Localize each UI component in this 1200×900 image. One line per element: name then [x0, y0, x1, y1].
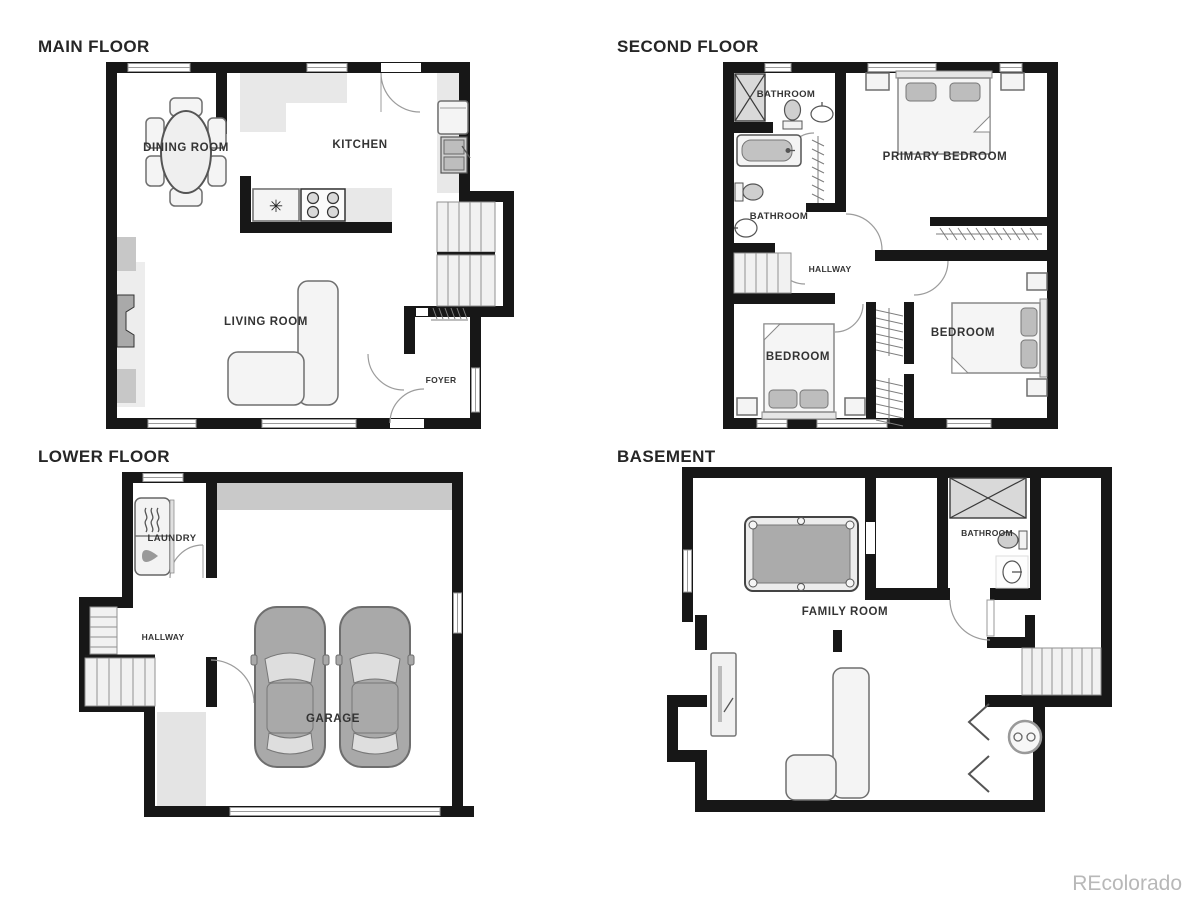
room-label-hallway: HALLWAY — [809, 264, 852, 274]
pool-table-icon — [745, 517, 858, 591]
room-label-kitchen: KITCHEN — [332, 139, 387, 151]
floor-title-second: SECOND FLOOR — [617, 37, 759, 56]
room-label-bathroom-top: BATHROOM — [757, 89, 815, 100]
bathtub-icon — [737, 135, 801, 166]
entry-pad — [157, 712, 206, 806]
sink-icon — [996, 556, 1028, 588]
shower-icon — [950, 478, 1026, 518]
door-arcs — [368, 73, 424, 423]
room-label-garage: GARAGE — [306, 713, 360, 725]
stairs — [85, 607, 155, 706]
stove-icon — [301, 189, 345, 221]
room-label-foyer: FOYER — [426, 375, 457, 385]
tv-icon — [711, 653, 736, 736]
floorplan-lower-floor: LOWER FLOOR — [38, 447, 474, 817]
stairs — [734, 253, 791, 293]
stairs — [437, 202, 495, 306]
room-label-hallway: HALLWAY — [142, 632, 185, 642]
room-label-dining-room: DINING ROOM — [143, 142, 229, 154]
room-label-laundry: LAUNDRY — [148, 533, 197, 544]
room-label-bathroom-mid: BATHROOM — [750, 211, 808, 222]
floorplan-second-floor: SECOND FLOOR — [617, 37, 1058, 429]
garage-door-band — [217, 483, 452, 510]
floor-title-main: MAIN FLOOR — [38, 37, 150, 56]
kitchen-sink-icon — [441, 137, 470, 173]
car-icon — [251, 607, 329, 767]
room-label-primary-bedroom: PRIMARY BEDROOM — [883, 151, 1008, 163]
refrigerator-star-icon: ✳ — [269, 197, 283, 216]
sink-icon — [811, 102, 833, 122]
floor-plan-canvas: MAIN FLOOR — [0, 0, 1200, 900]
toilet-icon — [735, 183, 763, 201]
room-label-living-room: LIVING ROOM — [224, 316, 308, 328]
toilet-icon — [783, 100, 802, 129]
room-label-family-room: FAMILY ROOM — [802, 606, 888, 618]
car-icon — [336, 607, 414, 767]
watermark: REcolorado — [1072, 872, 1182, 895]
floor-title-basement: BASEMENT — [617, 447, 716, 466]
water-heater-icon — [1009, 721, 1041, 753]
stairs — [1022, 648, 1101, 695]
room-label-bedroom-left: BEDROOM — [766, 351, 830, 363]
closet-rail — [812, 136, 1042, 426]
bed-icon — [866, 71, 1024, 154]
floor-plan-sheet: MAIN FLOOR — [0, 0, 1200, 900]
room-label-bathroom: BATHROOM — [961, 528, 1013, 538]
floorplan-main-floor: MAIN FLOOR — [38, 37, 514, 429]
sofa-icon — [786, 668, 869, 800]
door-arcs — [950, 600, 994, 640]
floorplan-basement: BASEMENT — [617, 447, 1112, 812]
walls — [667, 467, 1112, 812]
refrigerator-icon — [438, 101, 468, 134]
room-label-bedroom-right: BEDROOM — [931, 327, 995, 339]
bifold-door-icon — [969, 704, 989, 792]
floor-title-lower: LOWER FLOOR — [38, 447, 170, 466]
sofa-icon — [228, 281, 338, 405]
fireplace-icon — [117, 237, 145, 407]
refrigerator-star-box: ✳ — [253, 189, 299, 221]
bed-icon — [737, 324, 865, 419]
